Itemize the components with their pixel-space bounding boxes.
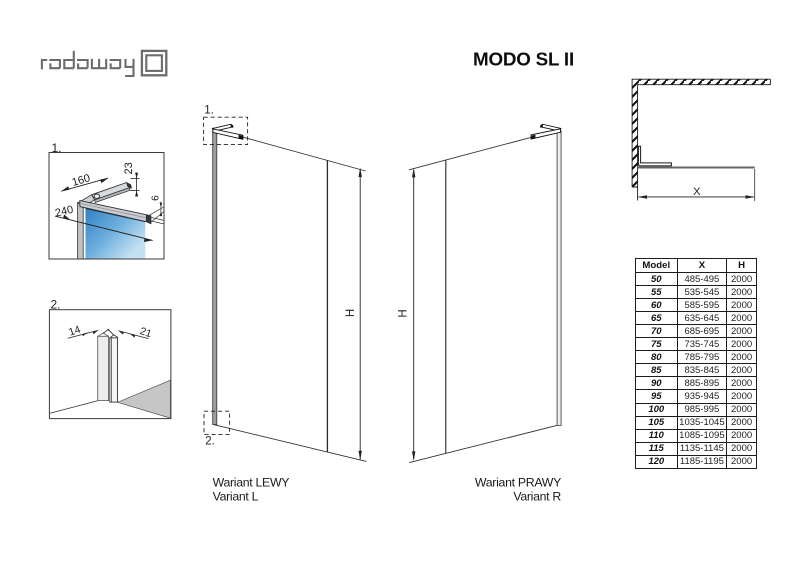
svg-text:6: 6 xyxy=(151,195,162,201)
svg-text:H: H xyxy=(345,309,357,317)
svg-text:2.: 2. xyxy=(205,435,215,447)
svg-text:Wariant LEWY: Wariant LEWY xyxy=(213,476,290,490)
svg-text:1.: 1. xyxy=(204,105,214,117)
svg-text:H: H xyxy=(398,309,410,317)
svg-text:Variant R: Variant R xyxy=(513,490,561,504)
svg-text:23: 23 xyxy=(123,162,135,174)
svg-text:X: X xyxy=(693,186,701,198)
svg-text:Wariant PRAWY: Wariant PRAWY xyxy=(475,476,561,490)
svg-text:Variant L: Variant L xyxy=(213,490,259,504)
svg-text:MODO SL II: MODO SL II xyxy=(473,49,574,70)
